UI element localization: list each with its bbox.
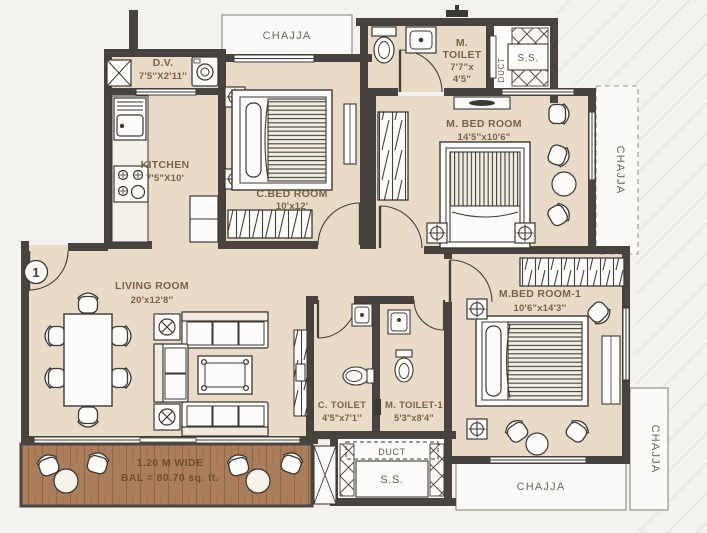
label-balcony-line1: 1.20 M WIDE	[137, 457, 204, 469]
fan-icon	[467, 419, 487, 439]
chair-icon	[78, 293, 98, 313]
kitchen-stove	[114, 166, 148, 202]
label-chajja-right-lower: CHAJJA	[649, 425, 661, 474]
label-mtoilet-l1: M.	[456, 37, 468, 49]
label-kitchen-dims: 7'5"X10'	[146, 173, 184, 184]
sofa-top	[182, 312, 268, 348]
label-mtoilet-l4: 4'5"	[453, 74, 471, 85]
shower-icon	[446, 5, 468, 17]
mbed-tv	[454, 97, 510, 109]
chair-icon	[111, 326, 131, 346]
label-mbed-name: M. BED ROOM	[446, 118, 522, 130]
cbed-bed	[232, 90, 332, 190]
label-mbed-dims: 14'5''x10'6"	[458, 132, 511, 143]
label-cbed-name: C.BED ROOM	[256, 188, 327, 200]
label-mbed1-dims: 10'6"x14'3''	[514, 303, 567, 314]
window-dv-left	[107, 60, 131, 86]
label-ss-top: S.S.	[517, 53, 538, 64]
chair-icon	[78, 407, 98, 427]
toilet-basin-icon	[388, 310, 410, 334]
label-ctoilet-dims: 4'5"x7'1''	[322, 413, 362, 423]
chair-icon	[45, 368, 65, 388]
window-dv	[136, 89, 196, 95]
fan-icon	[467, 299, 487, 319]
label-chajja-bottom: CHAJJA	[517, 481, 566, 493]
dv-fixtures	[192, 57, 218, 86]
label-living-name: LIVING ROOM	[115, 280, 189, 292]
sofa-bottom	[182, 402, 268, 436]
toilet-wc-icon	[395, 350, 413, 382]
label-mtoilet-l2: TOILET	[443, 49, 482, 61]
toilet-wc-icon	[372, 27, 396, 63]
label-cbed-dims: 10'x12'	[276, 201, 308, 212]
label-ctoilet-name: C. TOILET	[318, 400, 366, 411]
door-jamb	[373, 399, 381, 415]
balcony-end-duct	[314, 446, 336, 504]
floor-plan: CHAJJA CHAJJA CHAJJA CHAJJA D.V. 7'5''X2…	[0, 0, 707, 533]
side-table	[54, 469, 78, 493]
mbed-wardrobe	[378, 112, 408, 200]
label-kitchen-name: KITCHEN	[141, 159, 190, 171]
floor-plan-page: CHAJJA CHAJJA CHAJJA CHAJJA D.V. 7'5''X2…	[0, 0, 707, 533]
mbed1-wardrobe	[520, 258, 624, 286]
label-duct-bottom: DUCT	[378, 447, 405, 457]
label-balcony-line2: BAL = 80.70 sq. ft.	[121, 472, 219, 484]
loveseat	[154, 344, 188, 402]
chair-icon	[111, 368, 131, 388]
chajja-right-lower	[630, 388, 668, 510]
label-mbed1-name: M.BED ROOM-1	[499, 288, 581, 300]
window-mbed-right	[589, 112, 595, 180]
center-table	[198, 356, 252, 394]
window-duct-top	[490, 36, 496, 78]
fan-side-table	[154, 314, 180, 340]
toilet-wc-icon	[343, 367, 374, 385]
side-table	[526, 433, 548, 455]
chair-icon	[549, 104, 569, 124]
entry-marker-number: 1	[32, 265, 39, 280]
label-chajja-right-upper: CHAJJA	[614, 146, 626, 195]
window-living-slider	[34, 437, 300, 443]
fan-icon	[515, 223, 535, 243]
mbed1-dresser	[602, 336, 620, 404]
side-table	[246, 469, 270, 493]
window-mbed1-right	[623, 308, 629, 380]
window-mbed1-bottom	[490, 457, 586, 463]
label-chajja-top: CHAJJA	[263, 30, 312, 42]
fan-side-table	[154, 404, 180, 430]
mbed1-bed	[476, 316, 588, 406]
label-duct-top: DUCT	[497, 58, 506, 83]
label-mtoilet1-dims: 5'3"x8'4"	[394, 413, 434, 423]
washing-machine-icon	[192, 57, 218, 86]
tv-unit	[294, 330, 307, 416]
cbed-dresser	[344, 104, 356, 164]
toilet-basin-icon	[352, 304, 372, 326]
chair-icon	[45, 326, 65, 346]
window-cbed-top	[234, 55, 314, 62]
label-dv-name: D.V.	[153, 57, 174, 69]
label-mtoilet1-name: M. TOILET-1	[385, 400, 443, 411]
label-dv-dims: 7'5''X2'11''	[139, 71, 187, 82]
label-living-dims: 20'x12'8''	[131, 295, 174, 306]
background-texture-top	[556, 0, 707, 86]
fan-icon	[427, 223, 447, 243]
dining-table	[64, 314, 112, 406]
label-mtoilet-l3: 7'7"x	[450, 62, 474, 73]
window-mbed-top	[502, 89, 574, 95]
cbed-wardrobe	[228, 210, 312, 238]
label-ss-bottom: S.S.	[380, 474, 403, 486]
toilet-basin-icon	[406, 27, 436, 53]
side-table	[552, 172, 576, 196]
kitchen-sink	[114, 98, 146, 140]
